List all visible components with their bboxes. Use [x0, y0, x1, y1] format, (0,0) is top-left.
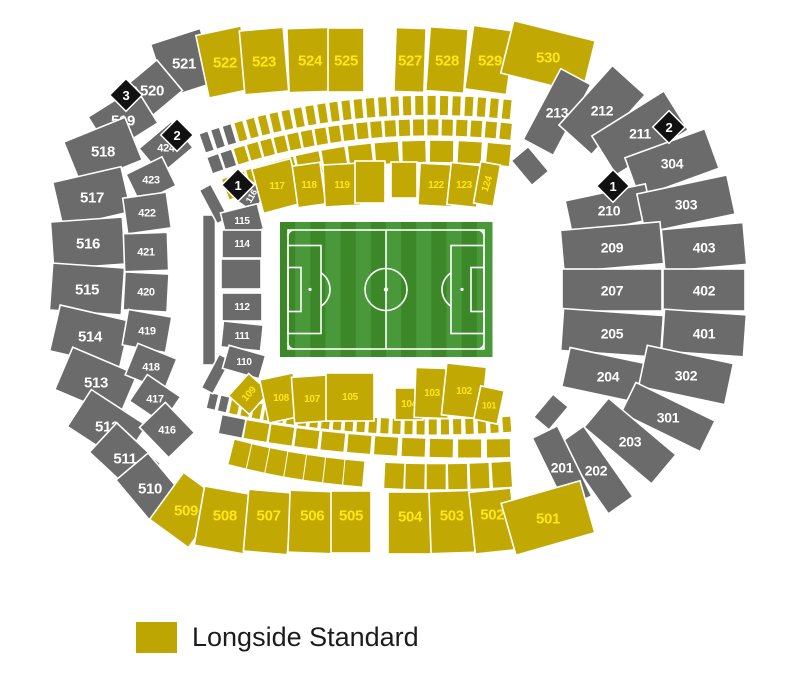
- seat-block: [441, 119, 453, 136]
- pitch-stripe: [386, 222, 402, 357]
- section-label: 107: [304, 394, 321, 405]
- seat-block: [402, 140, 427, 163]
- section-524[interactable]: 524: [287, 27, 333, 92]
- seat-block: [246, 117, 260, 139]
- seat-block: [415, 95, 424, 115]
- section-label: 530: [536, 49, 560, 66]
- section-label: 505: [339, 507, 363, 524]
- section-label: 123: [456, 180, 473, 191]
- section-label: 507: [257, 507, 281, 524]
- section-label: 504: [398, 508, 423, 525]
- seat-block: [257, 114, 271, 136]
- stadium-map: 5215205195185175165155145135125115105225…: [0, 0, 797, 620]
- section-525[interactable]: 525: [328, 28, 364, 92]
- section-label: 421: [137, 247, 155, 259]
- seat-block: [428, 419, 437, 435]
- section-label: 513: [84, 374, 108, 391]
- section-label: 102: [456, 386, 473, 397]
- legend-label: Longside Standard: [192, 622, 419, 653]
- pitch-stripe: [431, 222, 447, 357]
- section-label: 210: [598, 203, 621, 219]
- section-label: 103: [424, 388, 441, 399]
- seat-block: [294, 428, 320, 450]
- section-label: 119: [334, 180, 350, 191]
- section-118[interactable]: 118: [292, 162, 326, 207]
- seat-block: [380, 418, 390, 434]
- section-label: 515: [75, 281, 99, 298]
- section-label: 529: [478, 52, 502, 69]
- section-112[interactable]: 112: [222, 293, 262, 321]
- seat-block: [206, 393, 219, 411]
- seat-block: [405, 463, 426, 489]
- seat-block: [469, 462, 490, 489]
- seat-block: [305, 105, 317, 126]
- structure-shape: [534, 394, 569, 430]
- seat-block: [243, 420, 270, 443]
- seat-block: [390, 96, 400, 116]
- pitch-stripe: [462, 222, 478, 357]
- seat-block: [341, 100, 352, 121]
- section-label: 211: [629, 126, 651, 142]
- section-label: 201: [551, 460, 574, 476]
- section-422[interactable]: 422: [123, 192, 172, 234]
- seat-block: [234, 120, 248, 142]
- structure-shape: [511, 147, 548, 186]
- pitch-stripe: [401, 222, 417, 357]
- seat-block: [370, 121, 383, 139]
- seat-block: [429, 140, 453, 162]
- seat-block: [398, 119, 411, 136]
- section-label: 402: [693, 283, 716, 299]
- seat-block: [501, 99, 512, 120]
- section-516[interactable]: 516: [50, 217, 125, 269]
- structure-shape: [355, 161, 385, 203]
- seat-block: [457, 141, 482, 164]
- seat-block: [416, 419, 425, 435]
- legend: Longside Standard: [136, 622, 419, 653]
- seat-block: [317, 103, 329, 124]
- section-label: 510: [138, 480, 162, 497]
- seat-block: [489, 98, 500, 119]
- seat-block: [384, 462, 405, 489]
- section-501[interactable]: 501: [501, 481, 595, 556]
- section-label: 303: [675, 197, 698, 213]
- seat-block: [269, 112, 282, 133]
- section-label: 105: [342, 392, 359, 403]
- seat-block: [293, 107, 306, 128]
- pitch-center-spot: [384, 287, 388, 291]
- gate-number: 2: [666, 120, 673, 135]
- seat-block: [484, 121, 497, 139]
- seat-block: [452, 419, 461, 435]
- section-label: 114: [234, 239, 250, 250]
- section-label: 212: [591, 103, 614, 119]
- gate-number: 3: [123, 88, 130, 103]
- section-label: 521: [172, 55, 196, 72]
- section-label: 112: [234, 302, 250, 313]
- pitch-stripe: [325, 222, 341, 357]
- section-209[interactable]: 209: [560, 222, 663, 273]
- section-label: 122: [428, 180, 445, 191]
- gate-number: 1: [610, 179, 617, 194]
- section-label: 401: [693, 326, 716, 342]
- section-label: 417: [146, 394, 164, 406]
- gate-number: 1: [235, 178, 242, 193]
- section-label: 527: [398, 52, 422, 69]
- section-507[interactable]: 507: [243, 489, 292, 555]
- section-421[interactable]: 421: [123, 232, 168, 272]
- seat-block: [314, 127, 329, 146]
- seat-block: [384, 120, 397, 138]
- seatmap-stage: 5215205195185175165155145135125115105225…: [0, 0, 797, 695]
- structure-block: [534, 394, 569, 430]
- section-label: 110: [236, 357, 252, 368]
- seat-block: [356, 122, 370, 140]
- seat-block: [329, 101, 341, 122]
- seat-block: [320, 431, 346, 452]
- structure-block: [355, 161, 385, 203]
- section-label: 108: [273, 393, 290, 404]
- legend-swatch-longside-standard: [136, 622, 177, 653]
- section-105[interactable]: 105: [326, 373, 374, 421]
- seat-block: [347, 434, 372, 455]
- section-label: 516: [76, 235, 100, 252]
- structure-shape: [203, 215, 216, 365]
- pitch-stripe: [356, 222, 372, 357]
- gate-number: 2: [174, 128, 181, 143]
- seat-block: [343, 459, 365, 487]
- seat-block: [439, 95, 448, 115]
- section-label: 506: [300, 507, 324, 524]
- seat-block: [427, 119, 439, 136]
- section-505[interactable]: 505: [331, 491, 371, 553]
- pitch-stripe: [310, 222, 326, 357]
- section-label: 503: [440, 507, 464, 524]
- section-label: 118: [301, 180, 317, 191]
- structure-shape: [221, 259, 261, 289]
- penalty-spot: [460, 288, 463, 291]
- section-label: 416: [158, 425, 176, 437]
- section-label: 204: [597, 369, 620, 385]
- section-label: 422: [138, 208, 156, 220]
- seat-block: [458, 439, 482, 458]
- structure-shape: [391, 162, 417, 198]
- seat-block: [401, 437, 426, 457]
- seat-block: [281, 109, 294, 130]
- section-label: 423: [142, 175, 160, 187]
- section-label: 523: [252, 53, 276, 70]
- seat-block: [268, 424, 295, 446]
- seat-block: [217, 395, 229, 413]
- section-label: 207: [601, 283, 624, 299]
- section-503[interactable]: 503: [429, 490, 475, 553]
- seat-block: [429, 438, 453, 457]
- seat-block: [499, 122, 513, 140]
- section-label: 203: [619, 434, 642, 450]
- section-label: 418: [142, 362, 160, 374]
- section-label: 525: [334, 52, 358, 69]
- section-label: 101: [482, 400, 496, 410]
- section-label: 518: [91, 143, 115, 160]
- section-label: 509: [174, 502, 198, 519]
- section-420[interactable]: 420: [123, 272, 169, 312]
- seat-block: [502, 416, 512, 433]
- seat-block: [491, 461, 513, 488]
- pitch-stripe: [447, 222, 463, 357]
- seat-block: [427, 95, 436, 115]
- seat-block: [342, 123, 356, 141]
- seat-block: [440, 419, 449, 435]
- section-527[interactable]: 527: [394, 27, 426, 92]
- seat-block: [365, 97, 376, 118]
- section-label: 514: [78, 328, 103, 345]
- section-523[interactable]: 523: [239, 27, 288, 95]
- section-label: 304: [661, 156, 684, 172]
- section-114[interactable]: 114: [222, 230, 262, 258]
- seat-block: [328, 125, 342, 144]
- section-label: 528: [435, 52, 459, 69]
- section-401[interactable]: 401: [662, 309, 747, 357]
- section-label: 419: [138, 326, 156, 338]
- section-label: 522: [213, 54, 237, 71]
- section-111[interactable]: 111: [221, 321, 263, 351]
- section-label: 301: [657, 410, 680, 426]
- seat-block: [486, 439, 510, 458]
- seat-block: [464, 96, 474, 116]
- structure-block: [391, 162, 417, 198]
- section-402[interactable]: 402: [663, 269, 745, 311]
- section-504[interactable]: 504: [388, 492, 432, 554]
- football-pitch: [280, 222, 493, 357]
- seat-block: [470, 120, 483, 138]
- section-label: 111: [235, 331, 250, 342]
- seat-block: [452, 96, 462, 116]
- seat-block: [323, 457, 346, 485]
- section-403[interactable]: 403: [661, 223, 746, 272]
- section-label: 524: [298, 52, 323, 69]
- seat-block: [404, 419, 413, 435]
- seat-block: [378, 97, 388, 118]
- section-506[interactable]: 506: [288, 490, 336, 554]
- seat-block: [426, 464, 446, 490]
- structure-block: [221, 259, 261, 289]
- section-label: 302: [675, 368, 698, 384]
- section-528[interactable]: 528: [426, 27, 468, 93]
- section-label: 520: [140, 82, 164, 99]
- structure-block: [203, 215, 216, 365]
- section-label: 420: [137, 287, 155, 299]
- section-label: 508: [213, 507, 237, 524]
- section-label: 115: [234, 216, 250, 227]
- section-label: 117: [269, 181, 285, 192]
- section-label: 209: [601, 240, 624, 256]
- seat-block: [218, 415, 245, 438]
- seat-block: [447, 463, 468, 489]
- seat-block: [273, 135, 289, 154]
- seat-block: [300, 129, 315, 148]
- section-419[interactable]: 419: [122, 309, 172, 352]
- seat-block: [465, 418, 475, 434]
- structure-block: [511, 147, 548, 186]
- seat-block: [455, 119, 468, 137]
- penalty-spot: [308, 288, 311, 291]
- seat-block: [412, 119, 424, 136]
- pitch-stripe: [416, 222, 432, 357]
- section-label: 205: [601, 326, 624, 342]
- section-label: 403: [693, 240, 716, 256]
- seat-block: [374, 436, 399, 456]
- section-207[interactable]: 207: [562, 269, 662, 311]
- section-label: 202: [585, 463, 608, 479]
- seat-block: [353, 98, 364, 119]
- pitch-stripe: [341, 222, 357, 357]
- seat-block: [287, 132, 302, 151]
- section-label: 517: [80, 189, 104, 206]
- section-label: 501: [536, 510, 560, 527]
- section-label: 502: [480, 506, 504, 523]
- seat-block: [476, 97, 486, 118]
- seat-block: [402, 96, 412, 116]
